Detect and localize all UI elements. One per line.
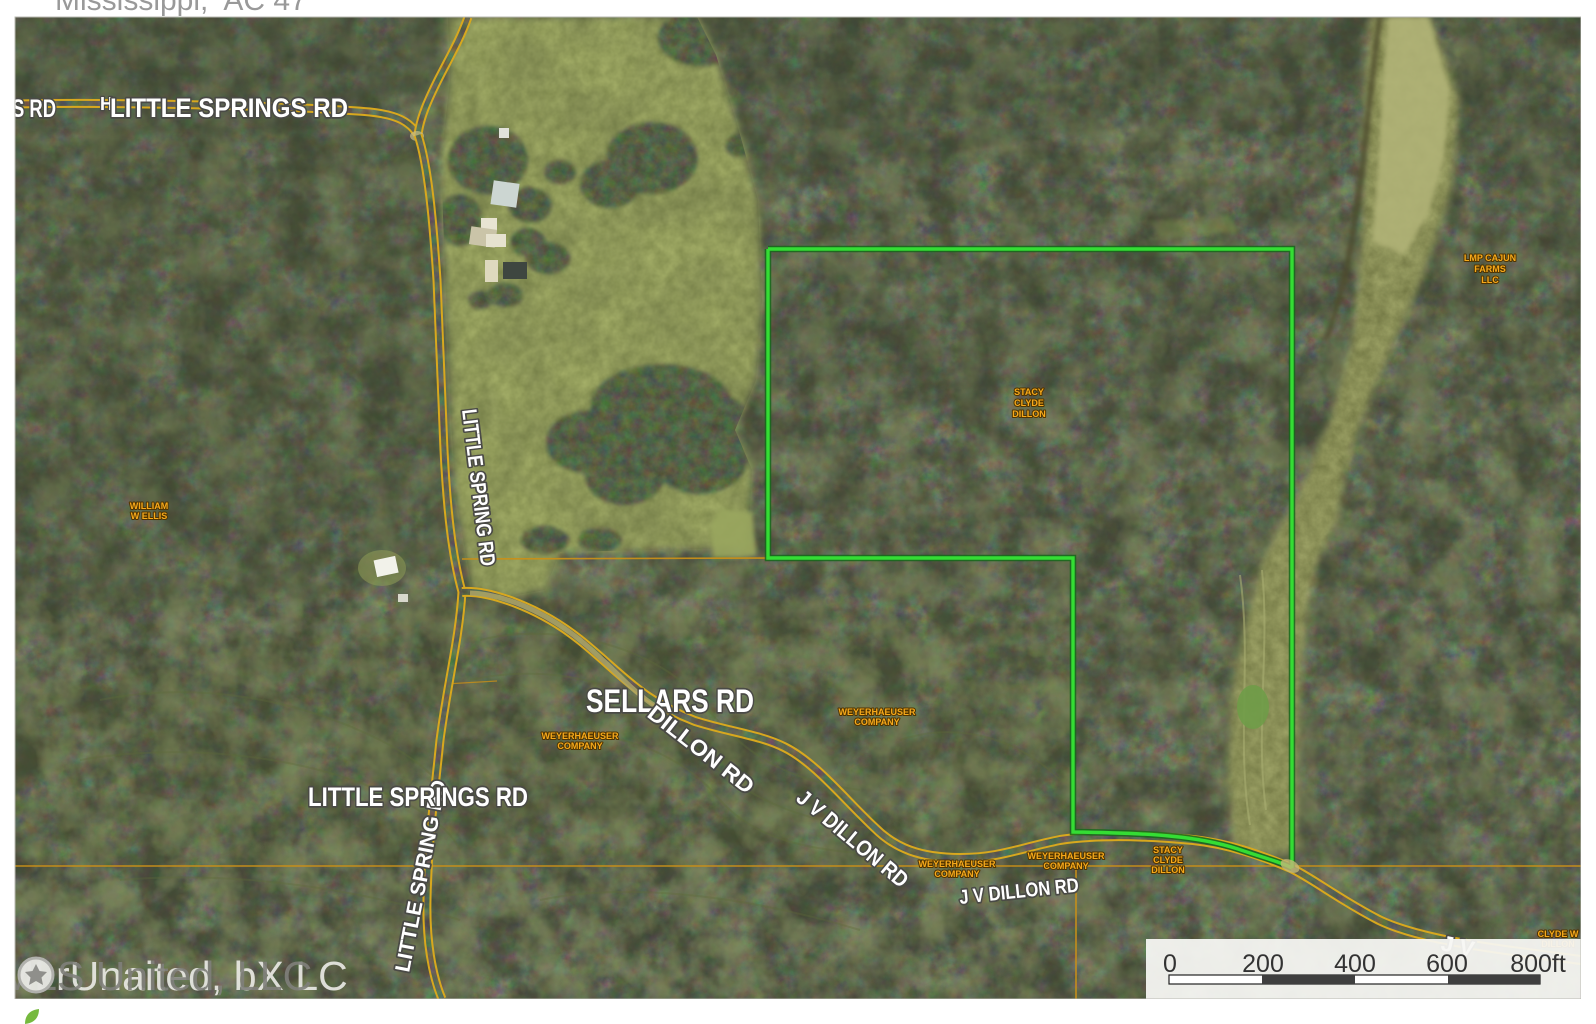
svg-text:CLYDE W: CLYDE W bbox=[1538, 929, 1579, 939]
svg-text:WEYERHAEUSER: WEYERHAEUSER bbox=[918, 859, 996, 869]
svg-text:STACY: STACY bbox=[1014, 387, 1044, 397]
svg-text:600: 600 bbox=[1426, 950, 1468, 978]
svg-text:200: 200 bbox=[1242, 950, 1284, 978]
svg-text:400: 400 bbox=[1334, 950, 1376, 978]
svg-text:W ELLIS: W ELLIS bbox=[131, 511, 168, 521]
svg-text:LLC: LLC bbox=[1481, 275, 1499, 285]
svg-text:800ft: 800ft bbox=[1510, 950, 1566, 978]
svg-text:S RD: S RD bbox=[12, 95, 56, 123]
svg-text:COMPANY: COMPANY bbox=[1043, 861, 1088, 871]
svg-text:COMPANY: COMPANY bbox=[854, 717, 899, 727]
svg-text:WEYERHAEUSER: WEYERHAEUSER bbox=[541, 731, 619, 741]
svg-text:LMP CAJUN: LMP CAJUN bbox=[1464, 253, 1516, 263]
svg-text:0: 0 bbox=[1163, 950, 1177, 978]
svg-text:CLYDE: CLYDE bbox=[1153, 855, 1183, 865]
svg-text:LITTLE SPRINGS RD: LITTLE SPRINGS RD bbox=[308, 782, 528, 812]
svg-text:DILLON: DILLON bbox=[1151, 865, 1185, 875]
svg-text:FARMS: FARMS bbox=[1474, 264, 1506, 274]
svg-text:WILLIAM: WILLIAM bbox=[130, 501, 169, 511]
svg-text:Mississippi, AC 47: Mississippi, AC 47 bbox=[55, 0, 307, 17]
svg-text:COMPANY: COMPANY bbox=[934, 869, 979, 879]
svg-text:WEYERHAEUSER: WEYERHAEUSER bbox=[1027, 851, 1105, 861]
svg-text:STACY: STACY bbox=[1153, 845, 1183, 855]
svg-text:DILLON: DILLON bbox=[1012, 409, 1046, 419]
svg-text:WEYERHAEUSER: WEYERHAEUSER bbox=[838, 707, 916, 717]
svg-text:COMPANY: COMPANY bbox=[557, 741, 602, 751]
svg-text:CLYDE: CLYDE bbox=[1014, 398, 1044, 408]
svg-text:LITTLE SPRINGS RD: LITTLE SPRINGS RD bbox=[110, 93, 348, 123]
